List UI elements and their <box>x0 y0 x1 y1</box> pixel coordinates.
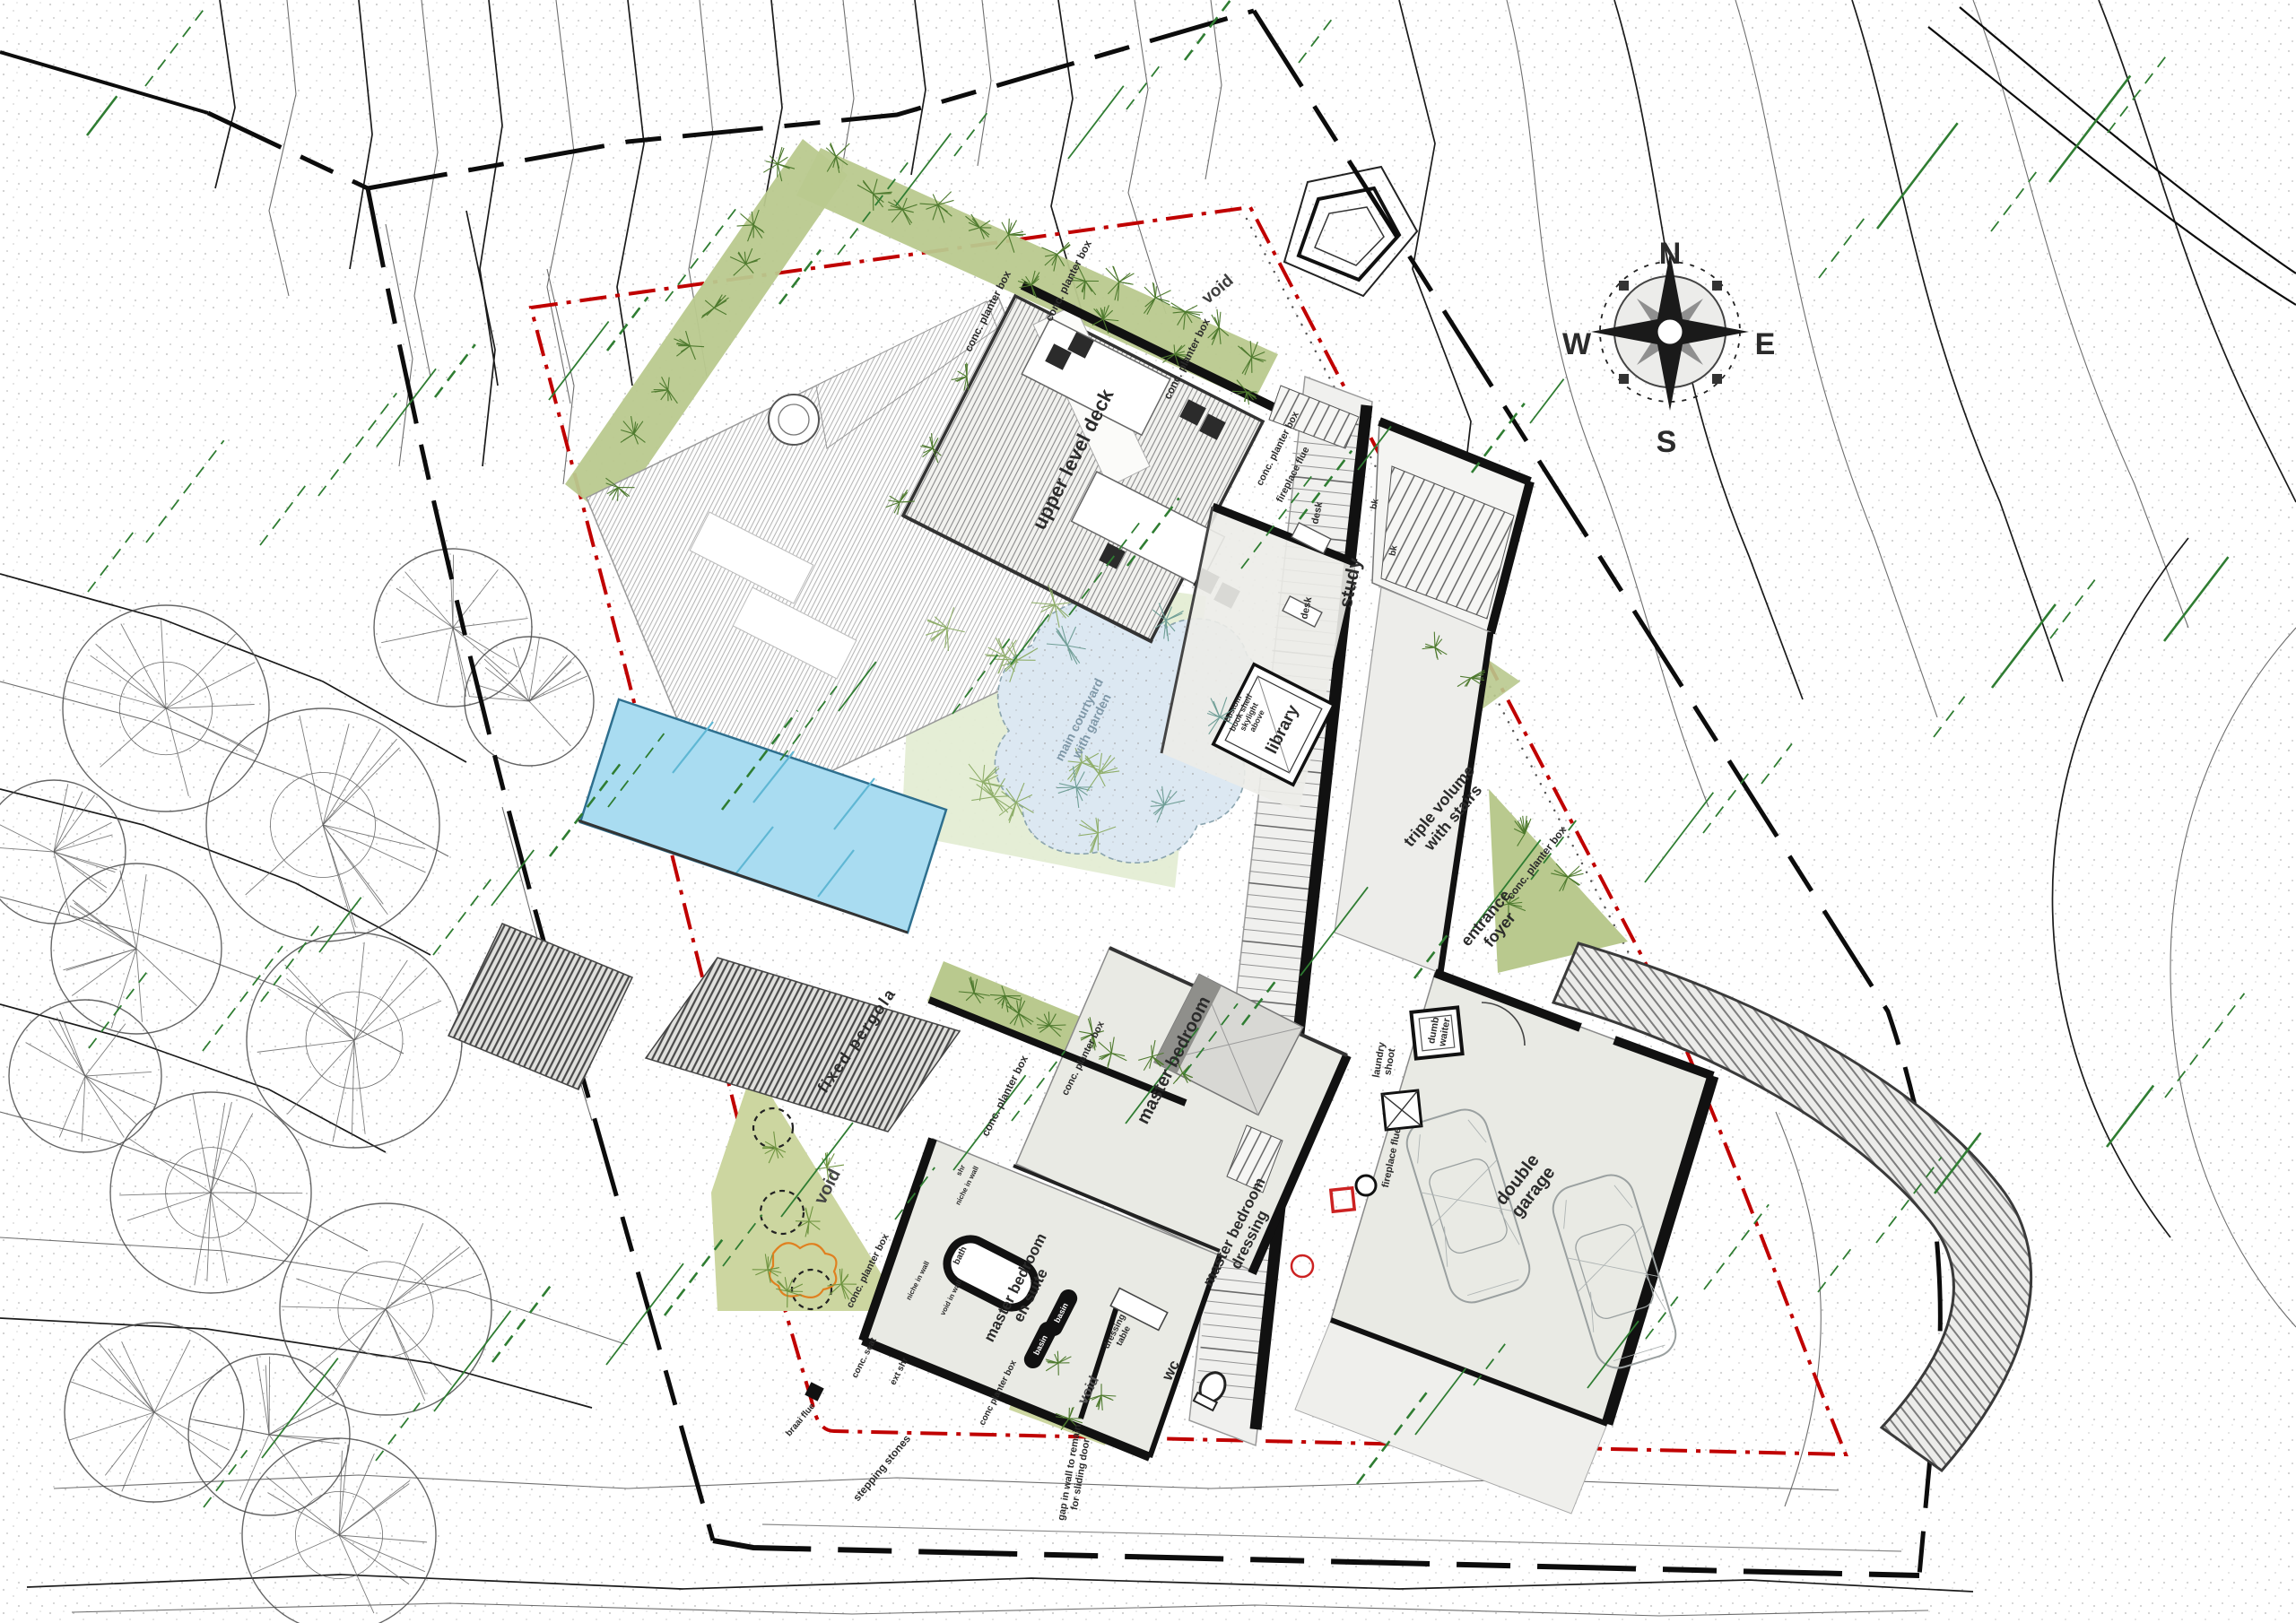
compass-e: E <box>1755 327 1776 361</box>
site-plan-drawing: NESWupper level deckvoidconc. planter bo… <box>0 0 2296 1623</box>
site-plan-sheet: NESWupper level deckvoidconc. planter bo… <box>0 0 2296 1623</box>
fireplace-flue-marker <box>1356 1176 1376 1195</box>
compass-hub <box>1657 318 1683 345</box>
circular-feature <box>769 395 819 445</box>
compass-n: N <box>1659 237 1682 271</box>
laundry-chute <box>1382 1090 1422 1130</box>
compass-w: W <box>1562 327 1592 361</box>
compass-s: S <box>1657 425 1677 459</box>
